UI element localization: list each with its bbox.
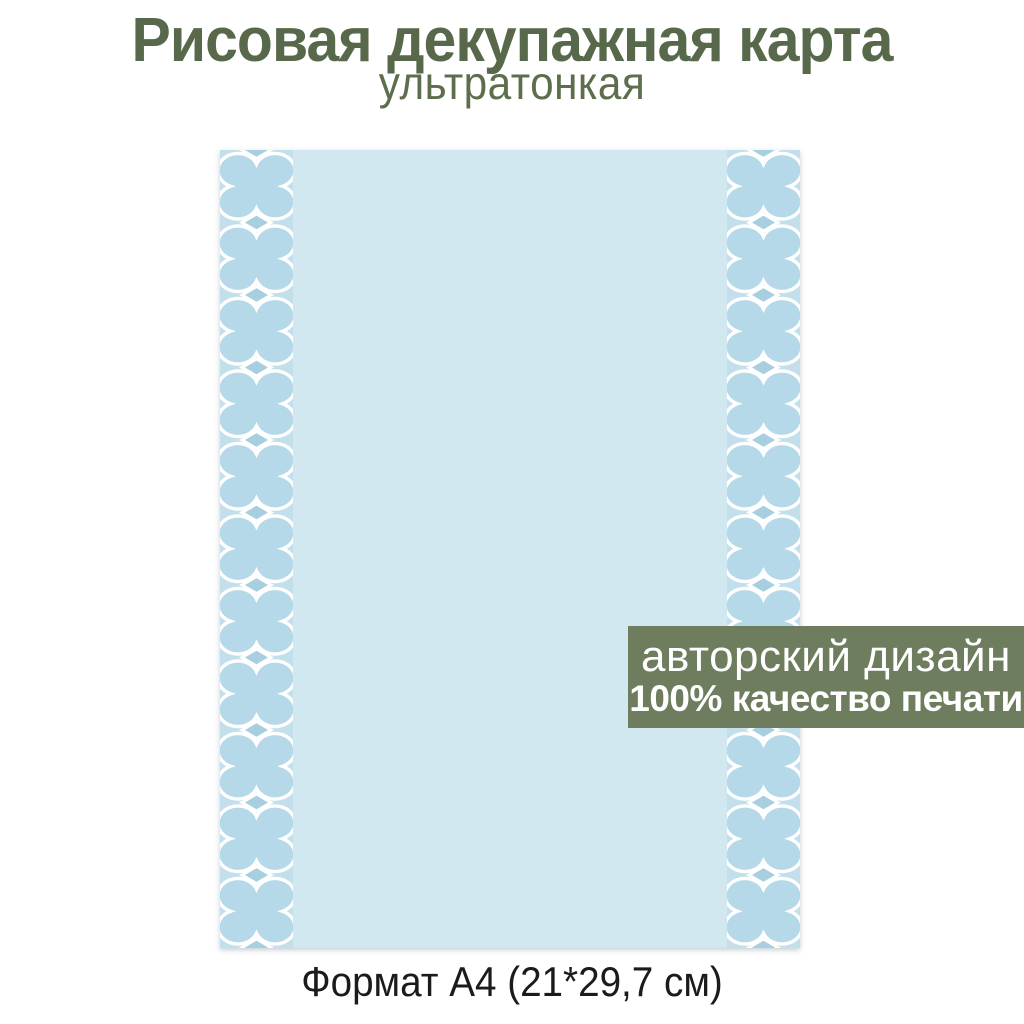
- product-image: Рисовая декупажная карта ультратонкая ав…: [0, 0, 1024, 1024]
- rice-paper-sheet: [220, 150, 800, 948]
- border-pattern-fill-left: [220, 150, 293, 948]
- quality-badge: авторский дизайн 100% качество печати: [628, 626, 1024, 728]
- page-subtitle: ультратонкая: [41, 60, 983, 106]
- quatrefoil-border-right: [727, 150, 800, 948]
- badge-author-design-label: авторский дизайн: [641, 635, 1011, 680]
- badge-print-quality-label: 100% качество печати: [629, 680, 1022, 719]
- quatrefoil-border-left: [220, 150, 293, 948]
- format-caption: Формат А4 (21*29,7 см): [41, 958, 983, 1006]
- border-pattern-fill-right: [727, 150, 800, 948]
